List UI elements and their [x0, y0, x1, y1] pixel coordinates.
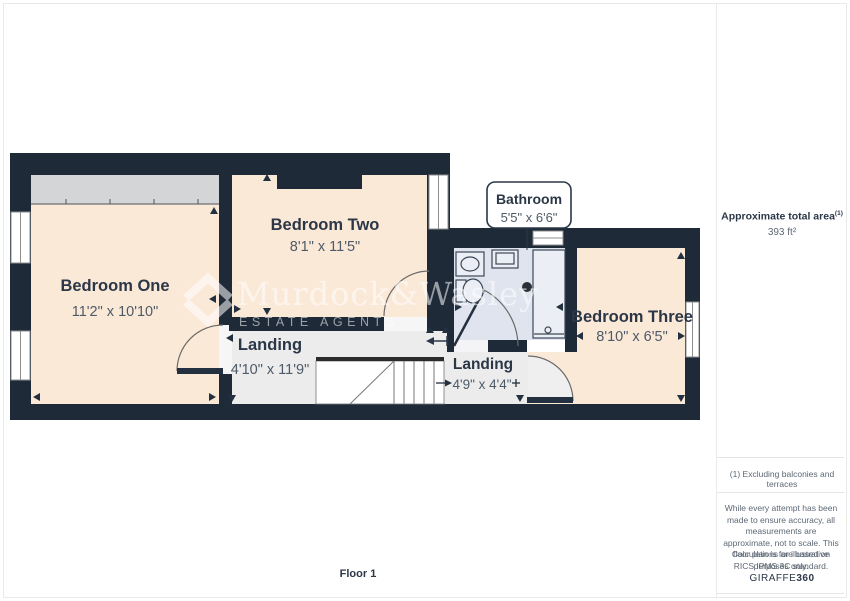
sink-basin	[461, 257, 479, 271]
door-stub-wall	[219, 374, 232, 404]
watermark-tagline: ESTATE AGENTS	[239, 315, 398, 329]
giraffe360-suffix: 360	[796, 573, 814, 584]
giraffe360-name: GIRAFFE	[749, 573, 796, 584]
bottom-wall	[10, 404, 700, 420]
bedroom-three-left-wall	[565, 248, 577, 352]
bathroom-dimensions: 5'5" x 6'6"	[501, 210, 558, 225]
area-footnote: (1) Excluding balconies and terraces	[717, 469, 847, 489]
bathroom-label: Bathroom	[496, 191, 562, 207]
landing-two-dimensions: 4'9" x 4'4"	[452, 377, 511, 392]
door-leaf-bedroom-one	[177, 368, 223, 374]
bedroom-one-dimensions: 11'2" x 10'10"	[72, 304, 159, 320]
standards-note: Calculations are based on RICS IPMS 3C s…	[721, 549, 841, 572]
bedroom-one-label: Bedroom One	[60, 277, 169, 295]
total-area-block: Approximate total area(1) 393 ft²	[717, 210, 847, 238]
bedroom-three-label: Bedroom Three	[571, 308, 693, 326]
chimney-breast	[277, 175, 362, 189]
total-area-label: Approximate total area	[721, 211, 835, 223]
bedroom-two-label: Bedroom Two	[271, 216, 380, 234]
floorplan-page: { "floorplan": { "floor_label": "Floor 1…	[0, 0, 850, 601]
info-sidebar: Approximate total area(1) 393 ft² (1) Ex…	[716, 4, 847, 597]
bedroom-two-dimensions: 8'1" x 11'5"	[290, 239, 360, 255]
giraffe360-logo: GIRAFFE360	[717, 573, 847, 584]
total-area-value: 393 ft²	[717, 227, 847, 238]
watermark-brand: Murdock&Wasley	[237, 275, 538, 313]
sidebar-divider	[717, 593, 844, 594]
sidebar-divider	[717, 492, 844, 493]
bathroom-top-wall	[447, 228, 700, 248]
bedroom-three-floor	[577, 248, 685, 404]
bathroom-doorway	[454, 340, 488, 352]
wardrobe	[31, 175, 219, 204]
total-area-footnote-marker: (1)	[835, 210, 843, 217]
door-leaf-bedroom-three	[527, 397, 573, 403]
landing-two-label: Landing	[453, 356, 513, 373]
bathroom-bottom-wall	[488, 340, 527, 352]
landing-one-label: Landing	[238, 336, 302, 354]
vanity-basin	[496, 253, 514, 264]
total-area-title: Approximate total area(1)	[717, 210, 847, 223]
stair-edge	[316, 357, 444, 361]
landing-one-dimensions: 4'10" x 11'9"	[231, 362, 309, 378]
floor-title: Floor 1	[310, 568, 406, 580]
bedroom-three-dimensions: 8'10" x 6'5"	[596, 329, 667, 345]
sidebar-divider	[717, 457, 844, 458]
